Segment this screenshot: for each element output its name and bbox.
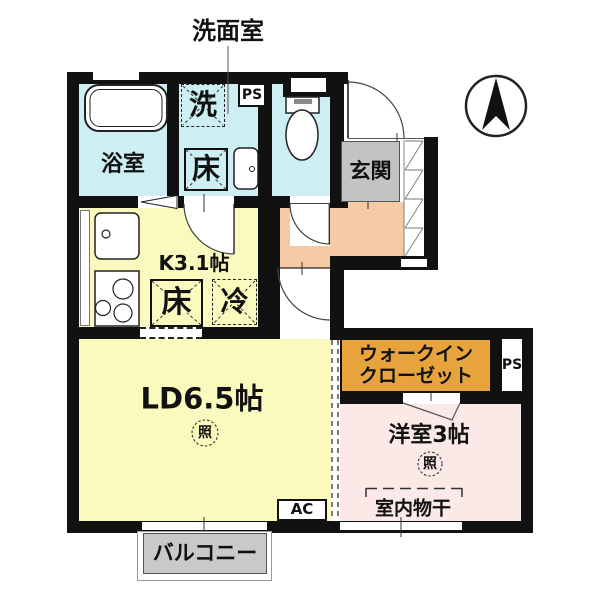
- kitchen-label: K3.1帖: [159, 253, 230, 273]
- kitchen-sink-icon: [95, 213, 139, 259]
- floor-box-washroom: 床: [184, 148, 228, 191]
- entrance-label: 玄関: [350, 159, 392, 183]
- stove-icon: [95, 271, 139, 326]
- indoor-drying-label: 室内物干: [375, 500, 451, 519]
- ps-box-top: PS: [238, 83, 266, 107]
- entrance-door-swing-icon: [348, 80, 424, 139]
- ac-box: AC: [277, 499, 327, 521]
- light-label-western: 照: [423, 457, 437, 471]
- bathtub-icon: [85, 85, 167, 131]
- sliding-partition-dashed: [332, 340, 338, 520]
- compass-north-icon: [466, 76, 526, 136]
- wic-label-line2: クローゼット: [359, 366, 473, 388]
- ps-box-right: PS: [500, 337, 524, 393]
- floor-plan: 洗 床 PS 床 冷 玄関 ウォークイン クローゼット PS AC バルコニー …: [0, 0, 600, 600]
- light-label-ld: 照: [198, 426, 212, 440]
- walk-in-closet-box: ウォークイン クローゼット: [340, 338, 492, 393]
- toilet-icon: [286, 97, 319, 160]
- washroom-door-swing-icon: [184, 204, 234, 254]
- washer-space-box: 洗: [181, 84, 225, 127]
- entrance-mat: 玄関: [341, 141, 400, 202]
- ld-door-swing-icon: [278, 268, 330, 320]
- folding-door-icon: [141, 196, 177, 209]
- floor-label: 床: [192, 153, 220, 185]
- ac-label: AC: [291, 501, 314, 518]
- bathroom-label: 浴室: [101, 154, 145, 176]
- fridge-space-box: 冷: [212, 279, 257, 325]
- ps-label: PS: [242, 87, 262, 103]
- balcony: バルコニー: [143, 533, 267, 574]
- toilet-door-swing-icon: [290, 204, 330, 245]
- wash-basin-icon: [234, 148, 258, 189]
- entrance-step-hatch-icon: [404, 140, 423, 256]
- washroom-callout-label: 洗面室: [192, 19, 264, 43]
- floor-label: 床: [162, 286, 192, 321]
- ps-label: PS: [502, 357, 522, 373]
- clothes-rail-icon: [366, 488, 462, 497]
- fridge-label: 冷: [220, 286, 248, 318]
- floor-box-kitchen: 床: [150, 279, 203, 327]
- wic-door-v-icon: [403, 403, 460, 420]
- living-dining-label: LD6.5帖: [141, 385, 264, 414]
- western-room-label: 洋室3帖: [388, 425, 469, 447]
- wic-label-line1: ウォークイン: [359, 344, 473, 366]
- balcony-label: バルコニー: [153, 541, 258, 565]
- washer-label: 洗: [189, 89, 217, 121]
